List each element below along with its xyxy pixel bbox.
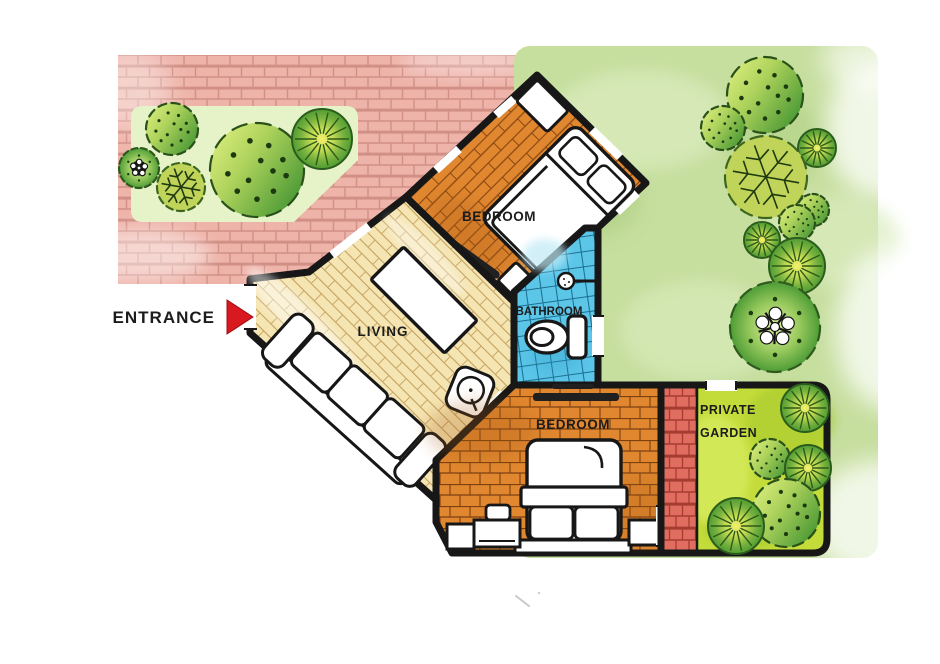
pillow: [575, 507, 618, 539]
garden-gate-gap: [705, 380, 737, 391]
flower-tree-icon: [730, 282, 820, 372]
entrance-label: ENTRANCE: [113, 308, 215, 327]
flower-tree-icon: [119, 148, 159, 188]
private-garden-label-line1: PRIVATE: [700, 403, 756, 417]
bedroom-bottom-room: [425, 384, 680, 553]
bush-tree-icon: [750, 439, 790, 479]
radial-tree-icon: [292, 109, 352, 169]
double-bed-bottom: [515, 440, 631, 553]
bedroom-bottom-label: BEDROOM: [536, 417, 610, 432]
bedroom-top-label: BEDROOM: [462, 209, 536, 224]
bush-tree-icon: [210, 123, 304, 217]
radial-tree-icon: [708, 498, 764, 554]
radial-tree-icon: [781, 384, 829, 432]
toilet: [526, 316, 586, 358]
stool: [486, 505, 510, 520]
bush-tree-icon: [701, 106, 745, 150]
floor-plan-illustration: BEDROOM LIVING BATHROOM BEDROOM PRIVATE …: [0, 0, 940, 664]
vein-tree-icon: [157, 163, 205, 211]
bush-tree-icon: [779, 205, 815, 241]
nightstand-left: [474, 520, 520, 547]
entrance-callout: ENTRANCE: [113, 300, 253, 334]
plan-canvas: BEDROOM LIVING BATHROOM BEDROOM PRIVATE …: [0, 0, 940, 664]
stray-marks: [516, 592, 540, 606]
pillow: [530, 507, 573, 539]
private-garden-label-line2: GARDEN: [700, 426, 757, 440]
bathroom-label: BATHROOM: [516, 306, 583, 318]
nightstand-right: [629, 520, 660, 545]
bush-tree-icon: [146, 103, 198, 155]
bathroom-door-gap: [592, 316, 604, 356]
window-box-corner: [447, 524, 474, 549]
living-label: LIVING: [357, 324, 408, 339]
garden-brick-wall: [661, 385, 697, 553]
